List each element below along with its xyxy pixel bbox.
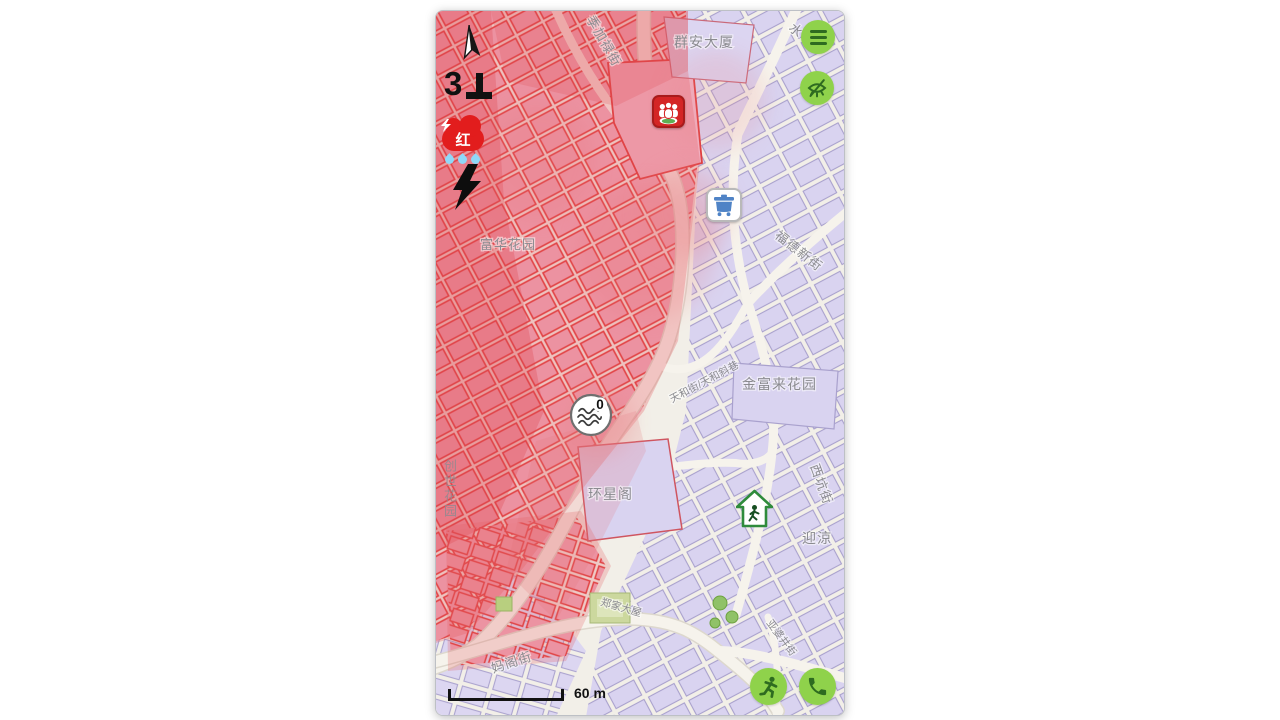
evacuation-route-button[interactable] — [750, 668, 787, 705]
scale-bar — [448, 689, 564, 701]
menu-button[interactable] — [801, 20, 835, 54]
map-label-fuhua: 富华花园 — [480, 237, 536, 252]
signal-3-inverted-t-icon — [465, 71, 493, 99]
map-label-chuangshi: 创世花园 — [440, 459, 459, 519]
people-group-icon — [654, 97, 683, 126]
eye-off-icon — [806, 77, 828, 99]
raindrops — [445, 155, 488, 164]
phone-icon — [806, 675, 829, 698]
blue-container-icon — [712, 194, 736, 217]
map-label-yingliang: 迎涼 — [802, 530, 832, 546]
hamburger-icon — [810, 30, 827, 45]
flood-sensor-marker[interactable]: 0 — [569, 393, 613, 437]
assembly-point-marker[interactable] — [652, 95, 685, 128]
flood-sensor-value: 0 — [596, 397, 604, 412]
running-person-icon — [757, 675, 781, 699]
map-label-jinfulai: 金富来花园 — [742, 376, 817, 392]
north-arrow-icon — [456, 22, 486, 64]
shelter-marker[interactable] — [736, 489, 773, 529]
map-canvas[interactable]: 季加禄街 群安大厦 水 富华花园 福德新街 天和街/天和斜巷 金富来花园 环星阁… — [436, 11, 845, 716]
shelter-house-icon — [736, 489, 773, 529]
rainstorm-level-text: 红 — [455, 129, 470, 150]
rainstorm-warning-badge: 红 — [442, 117, 488, 167]
typhoon-signal-badge: 3 — [444, 69, 493, 99]
scale-label: 60 m — [574, 685, 606, 701]
compass-button[interactable] — [456, 22, 486, 64]
lightning-bolt-icon — [450, 164, 484, 210]
thunderstorm-warning-badge — [450, 164, 484, 210]
visibility-toggle-button[interactable] — [800, 71, 834, 105]
collection-point-marker[interactable] — [706, 188, 742, 222]
typhoon-signal-number: 3 — [444, 69, 462, 99]
small-lightning-icon — [440, 119, 452, 133]
emergency-call-button[interactable] — [799, 668, 836, 705]
map-label-qunan: 群安大厦 — [674, 34, 734, 50]
rain-cloud-icon: 红 — [442, 127, 484, 151]
app-window: 季加禄街 群安大厦 水 富华花园 福德新街 天和街/天和斜巷 金富来花园 环星阁… — [435, 10, 845, 716]
map-label-huanxing: 环星阁 — [588, 486, 633, 502]
